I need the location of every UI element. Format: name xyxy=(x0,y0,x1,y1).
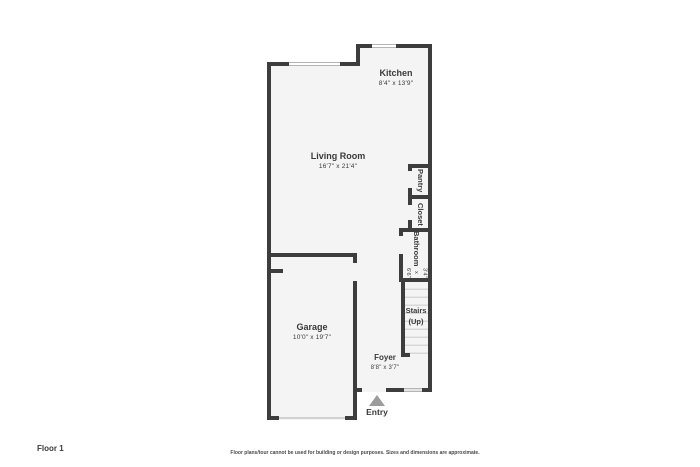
floor-plan-canvas: Kitchen 8'4" x 13'9" Living Room 16'7" x… xyxy=(0,0,700,467)
stairs-direction: (Up) xyxy=(394,316,438,327)
kitchen-label: Kitchen 8'4" x 13'9" xyxy=(346,67,446,89)
disclaimer-text: Floor plans/tour cannot be used for buil… xyxy=(160,450,550,456)
bathroom-dims: 3'4" x 6'6" xyxy=(404,266,429,279)
wall-foyer-bottom-mid xyxy=(386,388,404,392)
kitchen-window xyxy=(372,44,396,48)
kitchen-name: Kitchen xyxy=(346,67,446,79)
wall-foyer-bottom-right xyxy=(422,388,432,392)
entry-label: Entry xyxy=(337,407,417,417)
kitchen-dims: 8'4" x 13'9" xyxy=(346,79,446,89)
foyer-window xyxy=(404,388,422,392)
wall-kitchen-top-right xyxy=(396,44,432,48)
stairs-name: Stairs xyxy=(394,305,438,316)
closet-label: Closet xyxy=(412,200,428,228)
pantry-label: Pantry xyxy=(412,166,428,196)
wall-garage-top xyxy=(267,253,357,257)
wall-garage-right-lower xyxy=(353,281,357,420)
stairs-label: Stairs (Up) xyxy=(394,305,438,328)
wall-living-top-right xyxy=(340,62,360,66)
living-room-dims: 16'7" x 21'4" xyxy=(288,162,388,172)
foyer-label: Foyer 8'8" x 3'7" xyxy=(345,353,425,373)
wall-garage-right-upper xyxy=(353,257,357,263)
living-room-window xyxy=(289,62,340,66)
garage-door xyxy=(279,417,345,419)
bathroom-name: Bathroom xyxy=(411,231,421,266)
foyer-name: Foyer xyxy=(345,353,425,364)
foyer-dims: 8'8" x 3'7" xyxy=(345,364,425,373)
garage-dims: 10'0" x 19'7" xyxy=(262,333,362,343)
living-room-label: Living Room 16'7" x 21'4" xyxy=(288,150,388,172)
living-room-name: Living Room xyxy=(288,150,388,162)
bathroom-label: Bathroom 3'4" x 6'6" xyxy=(403,231,429,279)
closet-name: Closet xyxy=(415,203,425,226)
wall-garage-stub xyxy=(271,269,283,273)
wall-garage-bottom-left xyxy=(267,416,279,420)
pantry-name: Pantry xyxy=(415,169,425,192)
wall-left xyxy=(267,62,271,420)
entry-arrow-icon xyxy=(369,395,385,406)
garage-label: Garage 10'0" x 19'7" xyxy=(262,321,362,343)
wall-foyer-bottom-left xyxy=(353,388,362,392)
garage-name: Garage xyxy=(262,321,362,333)
wall-right xyxy=(428,44,432,392)
floor-number-label: Floor 1 xyxy=(37,444,64,453)
